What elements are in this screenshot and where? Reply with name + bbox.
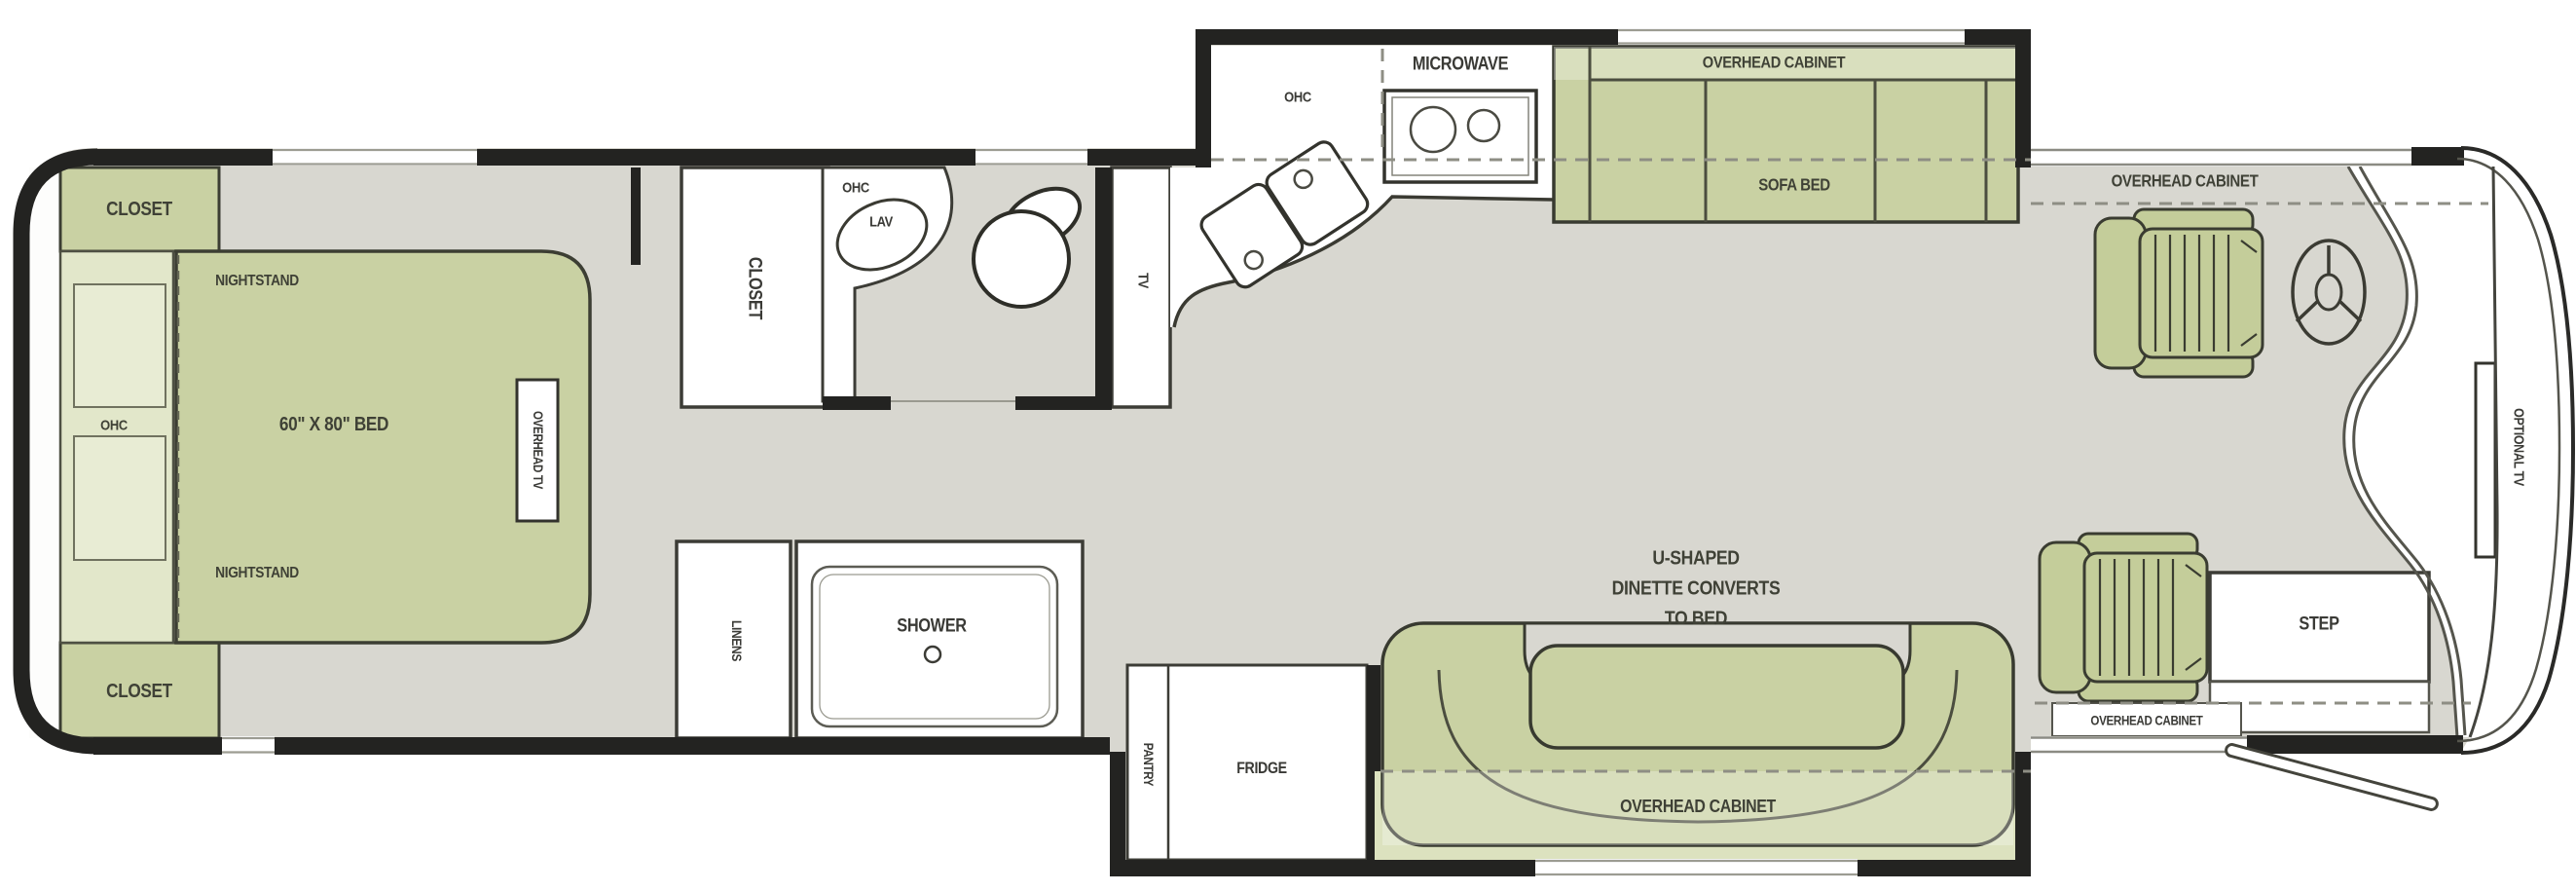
fridge-label: FRIDGE — [1236, 761, 1287, 777]
closet-top-label: CLOSET — [106, 200, 172, 219]
lav-label: LAV — [869, 215, 893, 230]
optional-tv-box — [2476, 363, 2495, 557]
linens-label: LINENS — [730, 620, 744, 661]
shower-room — [796, 541, 1083, 738]
rv-floorplan: CLOSET NIGHTSTAND OHC 60" X 80" BED OVER… — [0, 0, 2576, 892]
microwave-label: MICROWAVE — [1413, 56, 1508, 74]
driver-seat — [2095, 209, 2263, 377]
bed-label: 60" X 80" BED — [279, 415, 388, 434]
step-label: STEP — [2299, 615, 2338, 634]
sofa-overhead-cabinet-label: OVERHEAD CABINET — [1703, 55, 1845, 71]
shower-label: SHOWER — [897, 617, 966, 636]
floorplan-drawing — [0, 0, 2576, 892]
dinette-label-line3: TO BED — [1612, 604, 1781, 634]
closet-bottom-label: CLOSET — [106, 682, 172, 701]
step-lower-band — [2210, 682, 2429, 732]
pantry-label: PANTRY — [1141, 743, 1155, 786]
toilet-bowl — [974, 211, 1069, 307]
dinette-table — [1530, 646, 1903, 748]
u-shaped-dinette — [1375, 623, 2023, 862]
bedroom-partition-stub — [631, 167, 641, 265]
bedroom-ohc-label: OHC — [100, 419, 128, 433]
stove — [1384, 91, 1536, 182]
ohc-drawer-bottom — [74, 436, 166, 560]
nightstand-bottom-label: NIGHTSTAND — [215, 566, 299, 581]
kitchen-ohc-label: OHC — [1284, 91, 1311, 105]
cockpit-overhead-cabinet-bottom-label: OVERHEAD CABINET — [2090, 714, 2202, 727]
overhead-tv-label: OVERHEAD TV — [531, 411, 544, 489]
rear-cabinet-strip — [29, 167, 62, 738]
dinette-overhead-cabinet-label: OVERHEAD CABINET — [1620, 798, 1776, 816]
cockpit-overhead-cabinet-top-label: OVERHEAD CABINET — [2112, 172, 2259, 190]
ohc-drawer-top — [74, 284, 166, 407]
sofa-bed-label: SOFA BED — [1758, 176, 1830, 194]
wardrobe-closet-label: CLOSET — [746, 257, 764, 319]
lav-ohc-label: OHC — [842, 181, 869, 196]
tv-label: TV — [1136, 273, 1151, 288]
passenger-seat — [2040, 534, 2207, 701]
dinette-label-line2: DINETTE CONVERTS — [1612, 574, 1781, 604]
nightstand-top-label: NIGHTSTAND — [215, 274, 299, 289]
dinette-label-line1: U-SHAPED — [1612, 543, 1781, 574]
sofa-bed — [1554, 47, 2018, 222]
dinette-label: U-SHAPED DINETTE CONVERTS TO BED — [1612, 543, 1781, 634]
optional-tv-label: OPTIONAL TV — [2511, 408, 2525, 486]
